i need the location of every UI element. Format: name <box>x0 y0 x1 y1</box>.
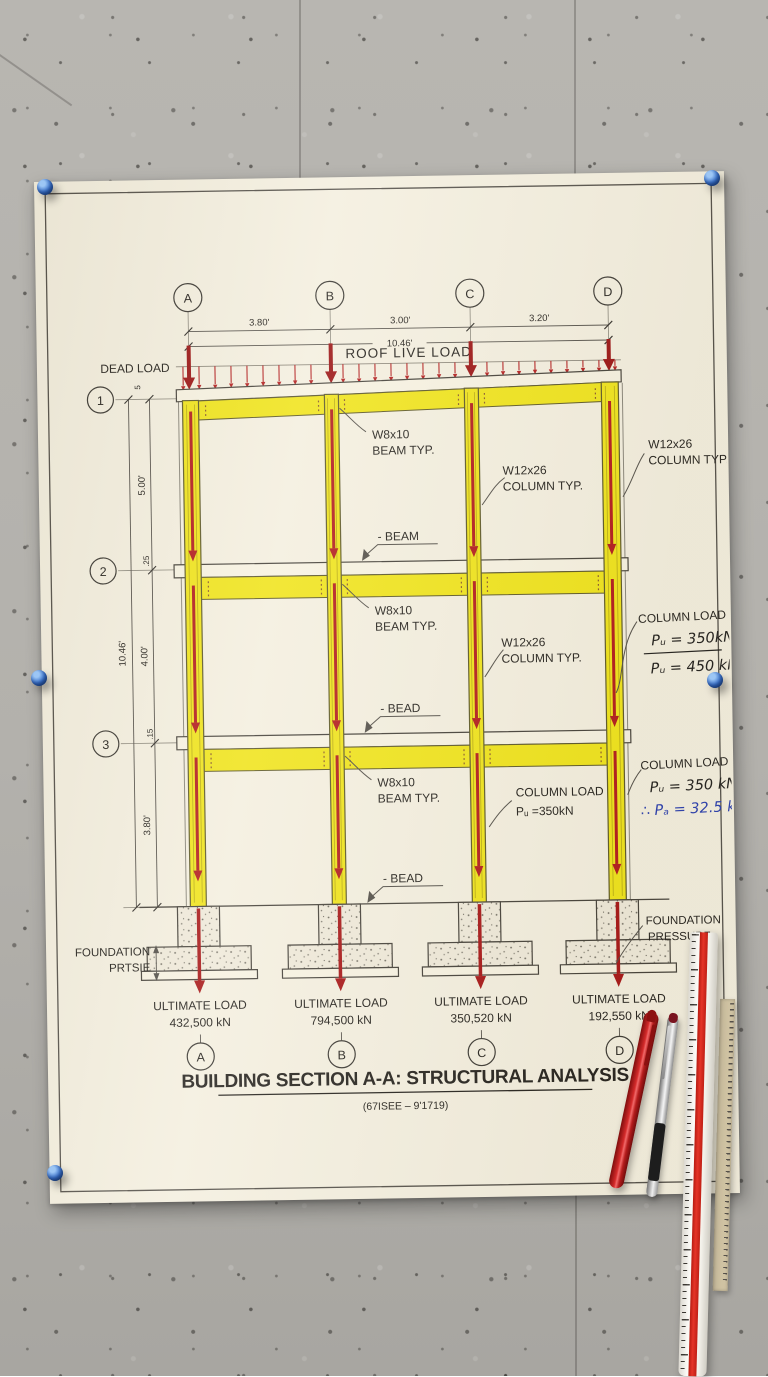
column-typ-label-right-b: COLUMN TYP. <box>648 452 728 467</box>
dim-span-ab: 3.80' <box>249 317 270 328</box>
ultimate-load-arrows <box>198 902 618 981</box>
grid-bubble-b: B <box>326 289 335 303</box>
beam-typ-label-3b: BEAM TYP. <box>378 791 440 806</box>
column-load-right-upper-bottom: Pᵤ = 450 kN <box>650 657 738 677</box>
ultimate-load-b-value: 794,500 kN <box>310 1013 372 1028</box>
ultimate-load-arrowheads <box>194 974 624 994</box>
blueprint-poster: 3.80' 3.00' 3.20' 10.46' A B C D ROOF LI… <box>34 171 740 1204</box>
push-pin-mid-left <box>31 670 47 686</box>
left-dimensions: 10.46' 5.00' 4.00' 3.80' 5 .25 .15 1 2 3 <box>87 384 186 912</box>
column-typ-label-2b: COLUMN TYP. <box>501 650 581 665</box>
annotations-story2: W8x10 BEAM TYP. W12x26 COLUMN TYP. COLUM… <box>342 578 738 733</box>
grid-bubble-a-bottom: A <box>196 1050 205 1064</box>
beam-typ-label-2a: W8x10 <box>375 603 413 618</box>
column-load-right-upper: COLUMN LOAD Pᵤ = 350kN Pᵤ = 450 kN <box>638 607 738 678</box>
dim-story3: 3.80' <box>142 815 153 836</box>
column-load-right-lower-title: COLUMN LOAD <box>640 754 729 772</box>
structural-drawing: 3.80' 3.00' 3.20' 10.46' A B C D ROOF LI… <box>34 171 738 1204</box>
dim-slab3-small: .15 <box>146 728 155 740</box>
dim-span-cd: 3.20' <box>529 313 550 324</box>
ultimate-load-a-value: 432,500 kN <box>169 1015 231 1030</box>
column-load-mid-title: COLUMN LOAD <box>516 784 605 799</box>
foundation-label-left-1: FOUNDATION <box>75 946 150 959</box>
ultimate-load-c-label: ULTIMATE LOAD <box>434 993 528 1008</box>
column-load-right-upper-title: COLUMN LOAD <box>638 608 727 626</box>
drawing-subtitle: (67ISEE – 9'1719) <box>363 1100 449 1113</box>
ultimate-load-d-value: 192,550 kN <box>588 1008 650 1023</box>
column-load-right-lower: COLUMN LOAD Pᵤ = 350 kN ∴ Pₐ = 32.5 kN <box>638 753 738 819</box>
ultimate-load-b-label: ULTIMATE LOAD <box>294 996 388 1011</box>
foundation-label-right-1: FOUNDATION <box>646 914 721 927</box>
dim-slab2-small: .25 <box>142 555 151 567</box>
beam-typ-label-1a: W8x10 <box>372 427 410 442</box>
ultimate-load-c-value: 350,520 kN <box>450 1011 512 1026</box>
grid-bubble-c: C <box>465 287 474 301</box>
dim-span-bc: 3.00' <box>390 315 411 326</box>
roof-live-load-label: ROOF LIVE LOAD <box>345 344 472 361</box>
ruler-group <box>678 932 752 1377</box>
grid-bubble-d: D <box>603 285 612 299</box>
beam-typ-label-3a: W8x10 <box>377 775 415 790</box>
push-pin-top-right <box>704 170 720 186</box>
wall-seam <box>574 0 576 186</box>
ultimate-load-a-label: ULTIMATE LOAD <box>153 998 247 1013</box>
top-grid: 3.80' 3.00' 3.20' 10.46' A B C D <box>174 277 623 353</box>
column-typ-label-2a: W12x26 <box>501 635 546 650</box>
foundation-label-left-2: PRTSIE <box>109 962 151 975</box>
column-load-mid-value: Pᵤ =350kN <box>516 804 574 819</box>
column-load-right-lower-bottom: ∴ Pₐ = 32.5 kN <box>640 798 738 819</box>
grid-bubble-c-bottom: C <box>477 1046 486 1060</box>
grid-bubble-a: A <box>184 292 193 306</box>
ruler-backing-strip <box>713 999 736 1291</box>
column-load-right-upper-top: Pᵤ = 350kN <box>651 629 735 649</box>
drawing-title: BUILDING SECTION A-A: STRUCTURAL ANALYSI… <box>181 1065 629 1093</box>
level-bubble-1: 1 <box>97 394 104 408</box>
column-flange-lines <box>186 386 622 903</box>
level-bubble-3: 3 <box>102 738 109 752</box>
dead-load-label: DEAD LOAD <box>100 361 170 376</box>
beam-typ-label-2b: BEAM TYP. <box>375 619 437 634</box>
beam-callout-3: - BEAD <box>383 871 424 886</box>
beam-callout-2: - BEAD <box>380 701 421 716</box>
wall-seam <box>575 1192 577 1376</box>
wall-seam <box>299 0 301 190</box>
foundations <box>140 899 676 994</box>
ultimate-load-d-label: ULTIMATE LOAD <box>572 991 666 1006</box>
grid-bubble-d-bottom: D <box>615 1044 624 1058</box>
dim-story2: 4.00' <box>139 646 150 667</box>
column-typ-label-1a: W12x26 <box>502 463 547 478</box>
column-typ-label-1b: COLUMN TYP. <box>503 478 583 493</box>
push-pin-mid-right <box>707 672 723 688</box>
dim-roof-small: 5 <box>133 385 142 390</box>
dim-story1: 5.00' <box>137 475 148 496</box>
grid-bubble-b-bottom: B <box>337 1048 346 1062</box>
dim-left-total: 10.46' <box>117 641 128 667</box>
push-pin-top-left <box>37 179 53 195</box>
column-typ-label-right-a: W12x26 <box>648 437 693 452</box>
column-load-right-lower-top: Pᵤ = 350 kN <box>649 776 737 796</box>
beam-typ-label-1b: BEAM TYP. <box>372 443 434 458</box>
level-bubble-2: 2 <box>100 565 107 579</box>
title-block: BUILDING SECTION A-A: STRUCTURAL ANALYSI… <box>181 1065 629 1116</box>
beam-callout-1: - BEAM <box>378 529 420 544</box>
push-pin-bottom-left <box>47 1165 63 1181</box>
annotations-story1: W8x10 BEAM TYP. W12x26 COLUMN TYP. W12x2… <box>340 402 731 561</box>
ultimate-loads: ULTIMATE LOAD 432,500 kN ULTIMATE LOAD 7… <box>153 991 667 1071</box>
pencil-clicker <box>668 1012 678 1023</box>
annotations-story3: W8x10 BEAM TYP. COLUMN LOAD Pᵤ =350kN CO… <box>345 750 738 903</box>
